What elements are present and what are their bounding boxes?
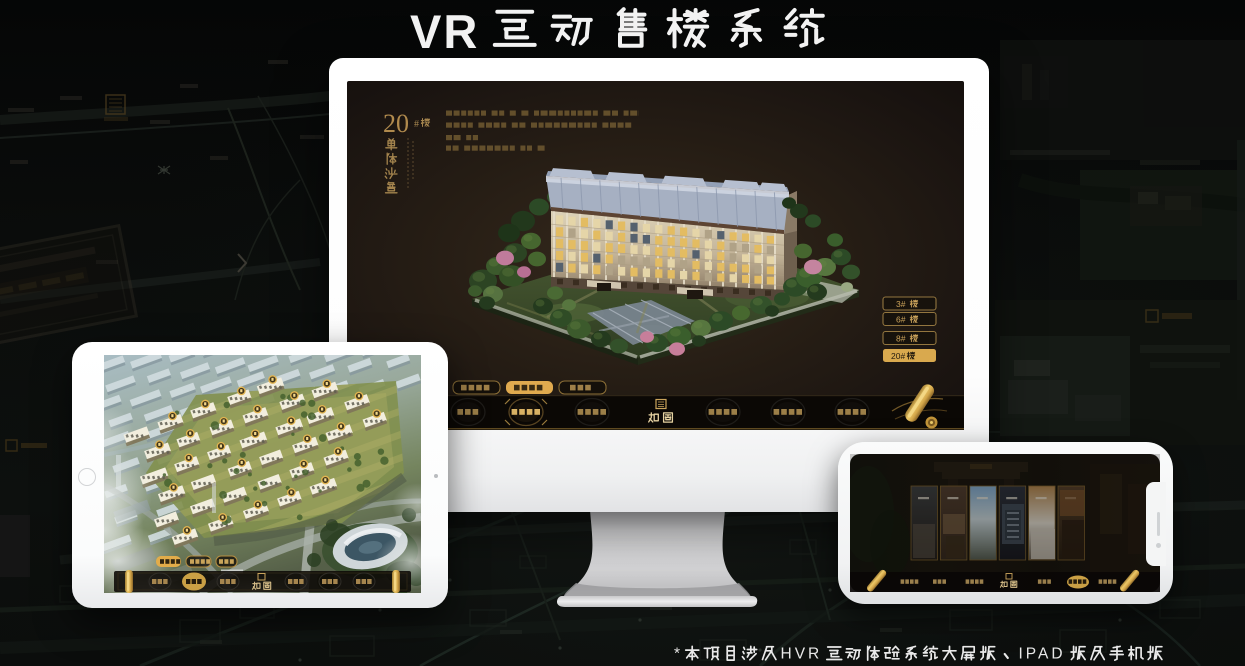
- svg-text:HVR: HVR: [781, 646, 823, 663]
- svg-text:VR: VR: [410, 5, 479, 58]
- svg-text:*: *: [674, 646, 683, 663]
- svg-text:IPAD: IPAD: [1019, 646, 1066, 663]
